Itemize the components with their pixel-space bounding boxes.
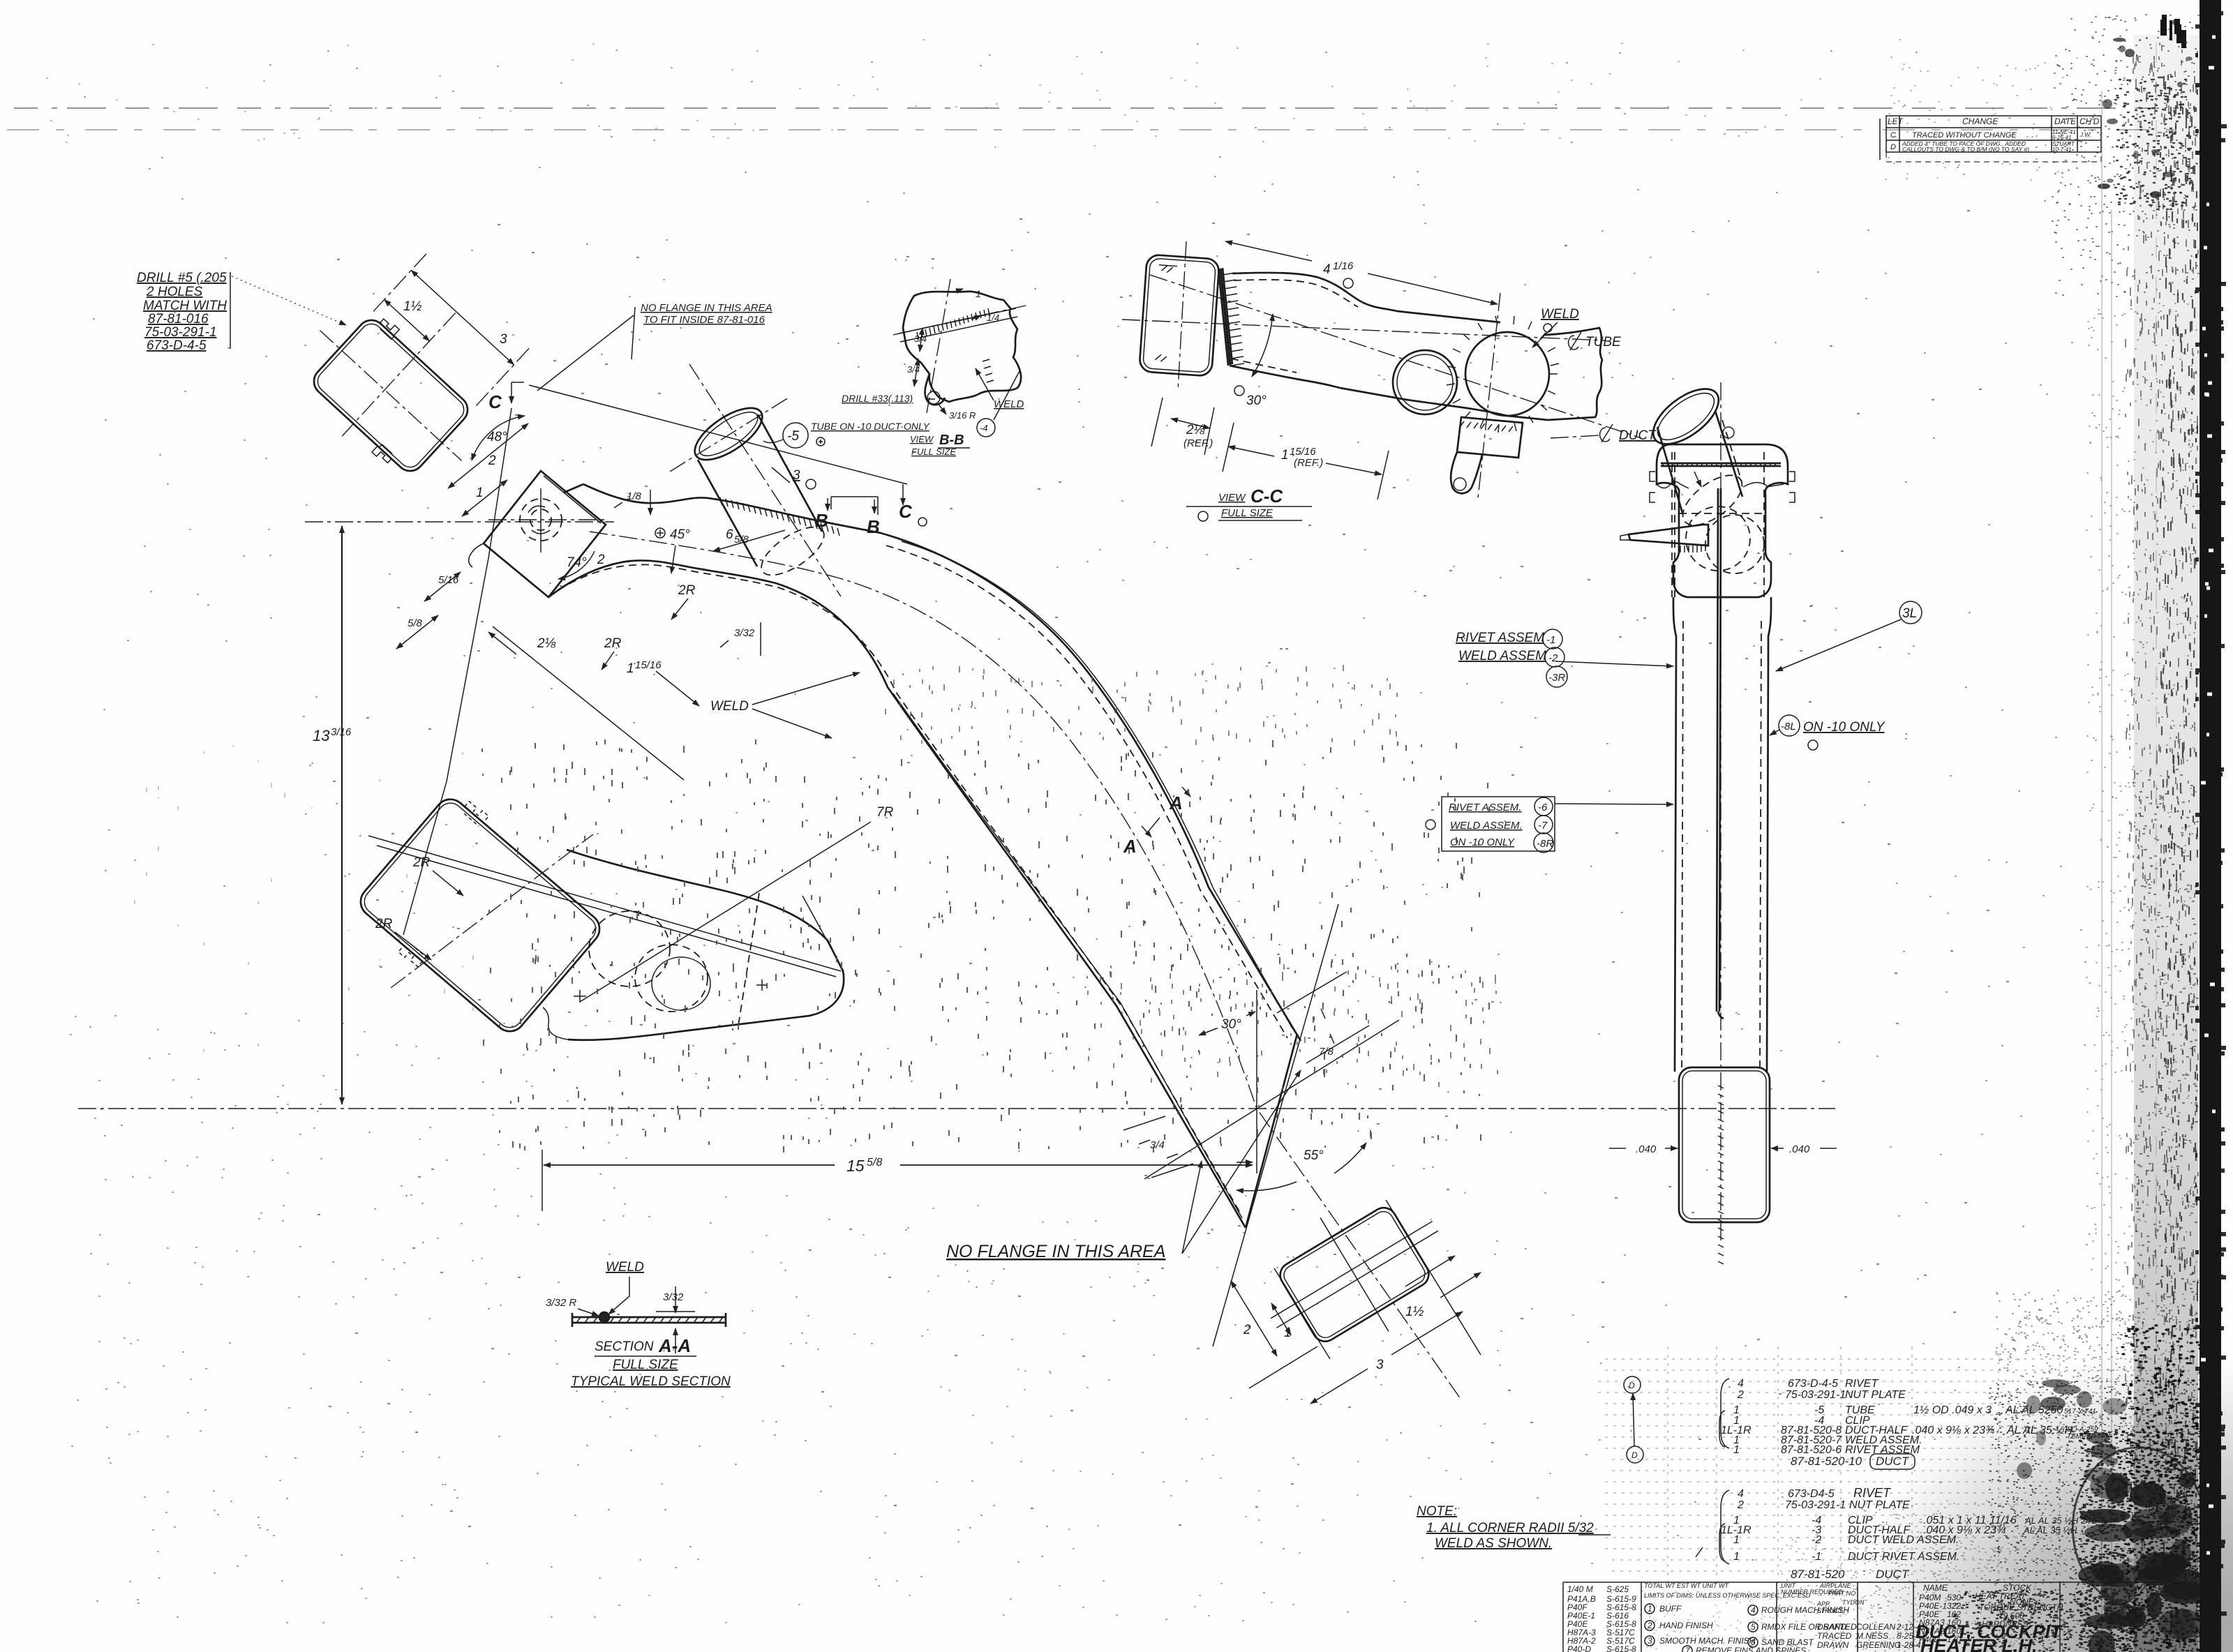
- svg-text:3/32: 3/32: [734, 627, 755, 639]
- svg-text:B: B: [867, 516, 880, 537]
- svg-text:D: D: [1890, 143, 1896, 151]
- svg-text:CH'D: CH'D: [2079, 117, 2100, 126]
- svg-text:3/16: 3/16: [331, 726, 352, 738]
- svg-text:2R: 2R: [604, 636, 622, 651]
- svg-text:6: 6: [726, 527, 733, 542]
- svg-text:C: C: [1890, 131, 1896, 140]
- svg-text:WELD ASSEM.: WELD ASSEM.: [1450, 820, 1523, 832]
- svg-text:.040: .040: [1789, 1143, 1810, 1155]
- svg-text:1: 1: [1733, 1551, 1740, 1563]
- svg-text:9-25-41: 9-25-41: [2052, 135, 2072, 141]
- svg-text:2: 2: [1243, 1323, 1251, 1337]
- svg-text:1: 1: [1281, 448, 1289, 463]
- svg-text:MATCH WITH: MATCH WITH: [143, 299, 227, 313]
- svg-text:3/32: 3/32: [663, 1291, 684, 1303]
- svg-text:CHANGE: CHANGE: [1962, 117, 1999, 126]
- svg-text:-8L: -8L: [1781, 721, 1796, 733]
- svg-text:BUFF: BUFF: [1659, 1604, 1682, 1614]
- svg-text:C-C: C-C: [1250, 486, 1283, 506]
- svg-text:C: C: [899, 501, 913, 522]
- svg-text:WELD: WELD: [1541, 307, 1579, 322]
- svg-text:-8R: -8R: [1537, 838, 1553, 850]
- svg-text:B: B: [815, 510, 828, 531]
- svg-text:55°: 55°: [1304, 1148, 1324, 1163]
- svg-text:ON -10 ONLY: ON -10 ONLY: [1450, 836, 1515, 848]
- svg-text:3: 3: [793, 468, 800, 483]
- svg-text:1/4: 1/4: [987, 313, 999, 323]
- svg-text:NOTE:: NOTE:: [1417, 1504, 1457, 1519]
- svg-text:B-B: B-B: [939, 433, 964, 448]
- svg-text:1: 1: [1648, 1604, 1652, 1614]
- svg-text:VIEW: VIEW: [1218, 492, 1246, 504]
- svg-text:75-03-291-1: 75-03-291-1: [144, 325, 217, 340]
- svg-text:3/4: 3/4: [1150, 1139, 1165, 1151]
- svg-text:FULL SIZE: FULL SIZE: [613, 1358, 678, 1372]
- svg-text:3: 3: [500, 332, 507, 347]
- svg-text:TUBE ON -10 DUCT ONLY: TUBE ON -10 DUCT ONLY: [811, 421, 931, 432]
- svg-text:WELD: WELD: [606, 1260, 644, 1275]
- svg-text:5: 5: [1751, 1622, 1756, 1632]
- svg-text:2R: 2R: [412, 855, 431, 870]
- svg-text:5/8: 5/8: [734, 534, 749, 546]
- svg-text:P40-D: P40-D: [1567, 1644, 1591, 1652]
- svg-text:TRACED WITHOUT CHANGE: TRACED WITHOUT CHANGE: [1912, 131, 2017, 140]
- svg-text:1/16: 1/16: [1333, 260, 1354, 272]
- svg-text:REMOVE FINS AND SPINES: REMOVE FINS AND SPINES: [1696, 1646, 1806, 1652]
- svg-text:673-D-4-5: 673-D-4-5: [147, 338, 207, 353]
- svg-text:3/32 R: 3/32 R: [546, 1297, 576, 1309]
- svg-text:TYPICAL WELD SECTION: TYPICAL WELD SECTION: [571, 1374, 731, 1389]
- svg-text:NO FLANGE IN THIS AREA: NO FLANGE IN THIS AREA: [641, 302, 772, 314]
- svg-text:2 HOLES: 2 HOLES: [146, 285, 203, 299]
- svg-text:7R: 7R: [876, 805, 894, 820]
- svg-text:1½: 1½: [403, 299, 422, 314]
- svg-text:S-625: S-625: [1606, 1584, 1629, 1594]
- svg-text:CALLOUTS TO DWG & TO B/M (NO T: CALLOUTS TO DWG & TO B/M (NO TO SAY #): [1902, 146, 2029, 153]
- svg-text:-3R: -3R: [1548, 672, 1565, 684]
- svg-text:2R: 2R: [375, 917, 393, 931]
- svg-text:-7: -7: [1538, 820, 1548, 832]
- svg-text:3L: 3L: [1902, 606, 1917, 621]
- svg-text:(REF.): (REF.): [1183, 437, 1213, 449]
- svg-text:A: A: [1169, 793, 1183, 813]
- svg-text:NO FLANGE IN THIS AREA: NO FLANGE IN THIS AREA: [946, 1242, 1165, 1261]
- svg-text:WELD: WELD: [994, 398, 1024, 410]
- svg-text:WELD ASSEM: WELD ASSEM: [1458, 649, 1546, 663]
- svg-text:2: 2: [597, 553, 605, 567]
- svg-text:2R: 2R: [678, 583, 696, 598]
- svg-text:-1: -1: [1812, 1551, 1821, 1563]
- svg-text:TUBE: TUBE: [1585, 335, 1621, 350]
- svg-text:TOTAL WT EST WT UNIT WT: TOTAL WT EST WT UNIT WT: [1644, 1582, 1729, 1589]
- svg-text:RIVET ASSEM: RIVET ASSEM: [1456, 631, 1544, 645]
- svg-text:5/8: 5/8: [867, 1157, 882, 1169]
- svg-text:87-81-520: 87-81-520: [1791, 1568, 1845, 1581]
- svg-text:1: 1: [1284, 1326, 1292, 1340]
- svg-text:75-03-291-1: 75-03-291-1: [1785, 1389, 1846, 1401]
- svg-text:30°: 30°: [1221, 1017, 1241, 1032]
- svg-text:ON -10 ONLY: ON -10 ONLY: [1803, 720, 1885, 735]
- svg-text:VIEW: VIEW: [910, 434, 934, 444]
- svg-text:DRILL #5 (.205: DRILL #5 (.205: [137, 271, 227, 285]
- svg-text:SECTION: SECTION: [595, 1339, 654, 1354]
- svg-text:75-03-291-1: 75-03-291-1: [1785, 1499, 1846, 1511]
- svg-text:4: 4: [1738, 1378, 1744, 1390]
- svg-text:HAND FINISH: HAND FINISH: [1659, 1621, 1713, 1630]
- svg-text:RIVET ASSEM.: RIVET ASSEM.: [1449, 802, 1521, 813]
- svg-text:1: 1: [627, 661, 634, 676]
- svg-text:45°: 45°: [670, 527, 690, 542]
- svg-text:TO FIT INSIDE 87-81-016: TO FIT INSIDE 87-81-016: [643, 314, 766, 326]
- svg-text:FULL SIZE: FULL SIZE: [1221, 507, 1274, 519]
- svg-text:DRILL #33(.113): DRILL #33(.113): [842, 393, 913, 404]
- svg-text:-2: -2: [1548, 652, 1558, 664]
- svg-text:-1: -1: [1546, 634, 1555, 646]
- svg-text:2: 2: [1647, 1621, 1652, 1630]
- svg-text:WELD AS SHOWN.: WELD AS SHOWN.: [1435, 1536, 1552, 1551]
- svg-text:74°: 74°: [567, 555, 587, 570]
- svg-text:4: 4: [1751, 1605, 1756, 1615]
- svg-text:WELD: WELD: [710, 699, 749, 714]
- svg-text:1: 1: [1733, 1534, 1740, 1546]
- svg-text:.040: .040: [1636, 1143, 1657, 1155]
- svg-text:673-D4-5: 673-D4-5: [1788, 1488, 1835, 1500]
- svg-text:2⅛: 2⅛: [537, 636, 556, 651]
- svg-text:1/40 M: 1/40 M: [1567, 1584, 1593, 1594]
- svg-text:DUCT: DUCT: [1619, 428, 1657, 443]
- svg-text:673-D-4-5: 673-D-4-5: [1788, 1378, 1838, 1390]
- svg-text:3: 3: [1376, 1358, 1384, 1372]
- svg-text:3/16 R: 3/16 R: [949, 410, 976, 421]
- svg-text:1. ALL CORNER RADII 5/32: 1. ALL CORNER RADII 5/32: [1426, 1521, 1594, 1535]
- svg-text:13: 13: [313, 727, 330, 744]
- svg-text:15: 15: [846, 1157, 865, 1175]
- svg-text:4: 4: [1323, 262, 1331, 277]
- svg-text:-6: -6: [1538, 802, 1548, 813]
- svg-text:D: D: [1629, 1381, 1635, 1390]
- svg-text:ROUGH MACH.FINISH: ROUGH MACH.FINISH: [1761, 1605, 1849, 1615]
- svg-text:D: D: [1631, 1450, 1638, 1460]
- svg-text:A-A: A-A: [658, 1335, 691, 1356]
- svg-text:10-7-41: 10-7-41: [2052, 147, 2072, 153]
- svg-text:1: 1: [476, 486, 484, 500]
- svg-text:1½: 1½: [1405, 1305, 1424, 1319]
- svg-text:4: 4: [1738, 1488, 1744, 1500]
- svg-text:87-81-016: 87-81-016: [148, 312, 209, 326]
- svg-text:J.W.: J.W.: [2079, 132, 2091, 138]
- svg-text:C: C: [488, 391, 502, 412]
- svg-text:30°: 30°: [1246, 393, 1267, 408]
- svg-text:LET: LET: [1888, 117, 1904, 126]
- svg-text:3/4: 3/4: [907, 364, 920, 375]
- svg-text:(REF.): (REF.): [1294, 457, 1323, 469]
- svg-text:DATE: DATE: [2054, 117, 2077, 126]
- svg-text:2: 2: [1737, 1389, 1744, 1401]
- svg-text:5/8: 5/8: [408, 617, 423, 629]
- svg-text:3: 3: [1648, 1636, 1652, 1646]
- svg-text:15/16: 15/16: [635, 659, 662, 671]
- svg-text:-4: -4: [980, 423, 988, 433]
- svg-text:1: 1: [976, 288, 981, 299]
- svg-text:2: 2: [1737, 1499, 1744, 1511]
- svg-text:1: 1: [1733, 1444, 1740, 1456]
- svg-text:S-615-8: S-615-8: [1606, 1644, 1636, 1652]
